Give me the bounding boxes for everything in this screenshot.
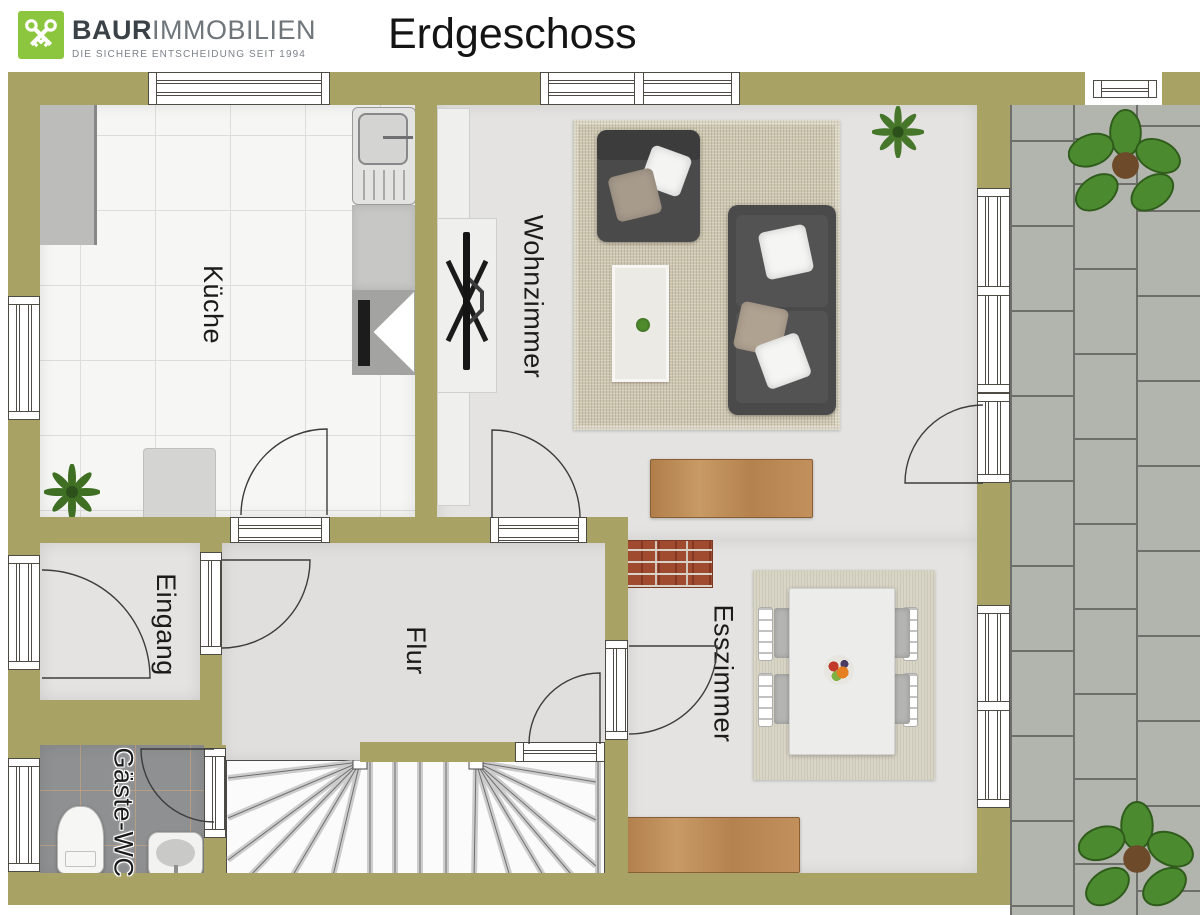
wall-segment — [740, 72, 1085, 105]
terrace-paving — [1010, 105, 1200, 915]
sideboard — [623, 817, 800, 873]
company-logo — [18, 11, 64, 59]
window-terrace-top — [1093, 80, 1157, 98]
hallway-floor — [222, 543, 628, 762]
terrace-door-opening — [977, 393, 1010, 483]
brand-bold: BAUR — [72, 15, 152, 45]
page-title: Erdgeschoss — [388, 10, 637, 59]
hall-door-opening — [200, 552, 222, 655]
wc-door-opening — [204, 748, 226, 838]
dining-chair — [758, 607, 773, 661]
entrance-door-opening — [8, 555, 40, 670]
stairs-door-opening — [515, 742, 605, 762]
dishwasher-door — [370, 292, 414, 372]
paver-column — [1073, 105, 1136, 915]
fireplace-brick — [623, 540, 713, 588]
window-kitchen-left — [8, 296, 40, 420]
terrace-plant-icon — [1078, 800, 1196, 915]
wall-segment — [330, 72, 540, 105]
dining-chair — [758, 673, 773, 727]
entrance-floor — [40, 543, 200, 700]
toilet — [57, 806, 104, 874]
kitchen-worktop — [352, 205, 416, 290]
potted-plant-icon — [44, 464, 100, 520]
basin-bowl — [156, 839, 195, 867]
sideboard — [650, 459, 813, 518]
kitchen-stool — [143, 448, 216, 521]
dining-door-opening — [605, 640, 628, 740]
floor-plan-page: BAURIMMOBILIEN DIE SICHERE ENTSCHEIDUNG … — [0, 0, 1200, 915]
wall-segment — [330, 517, 490, 543]
staircase — [226, 760, 605, 882]
wall-segment — [415, 105, 437, 517]
wall-segment — [8, 873, 1010, 905]
paver-column — [1136, 105, 1200, 915]
wall-segment — [40, 700, 222, 745]
kitchen-door-opening — [230, 517, 330, 543]
wall-segment — [40, 517, 230, 543]
table-plant-icon — [636, 318, 650, 332]
fruit-bowl — [824, 655, 854, 685]
kitchen-counter — [40, 105, 97, 245]
potted-plant-icon — [872, 106, 924, 158]
window-mullion — [634, 72, 644, 105]
kitchen-sink — [352, 107, 416, 205]
window-wc-left — [8, 758, 40, 872]
faucet-icon — [383, 136, 413, 139]
sink-drainer — [363, 170, 405, 200]
terrace-plant-icon — [1068, 108, 1183, 223]
crossed-keys-icon — [18, 11, 64, 59]
living-door-opening — [490, 517, 587, 543]
brand-name: BAURIMMOBILIEN — [72, 15, 316, 46]
sink-basin — [358, 113, 408, 165]
dishwasher — [352, 290, 416, 375]
toilet-cistern — [65, 851, 96, 867]
coffee-table-rug — [612, 265, 669, 382]
brand-light: IMMOBILIEN — [152, 15, 316, 45]
dishwasher-panel — [358, 300, 370, 366]
window-mullion — [977, 701, 1010, 711]
brand-tagline: DIE SICHERE ENTSCHEIDUNG SEIT 1994 — [72, 49, 306, 60]
window-kitchen-top — [148, 72, 330, 105]
window-mullion — [977, 286, 1010, 296]
washbasin — [148, 832, 203, 878]
paver-column — [1010, 105, 1073, 915]
wall-segment — [1162, 72, 1200, 105]
tv-icon — [440, 226, 494, 376]
pillow — [758, 224, 815, 281]
